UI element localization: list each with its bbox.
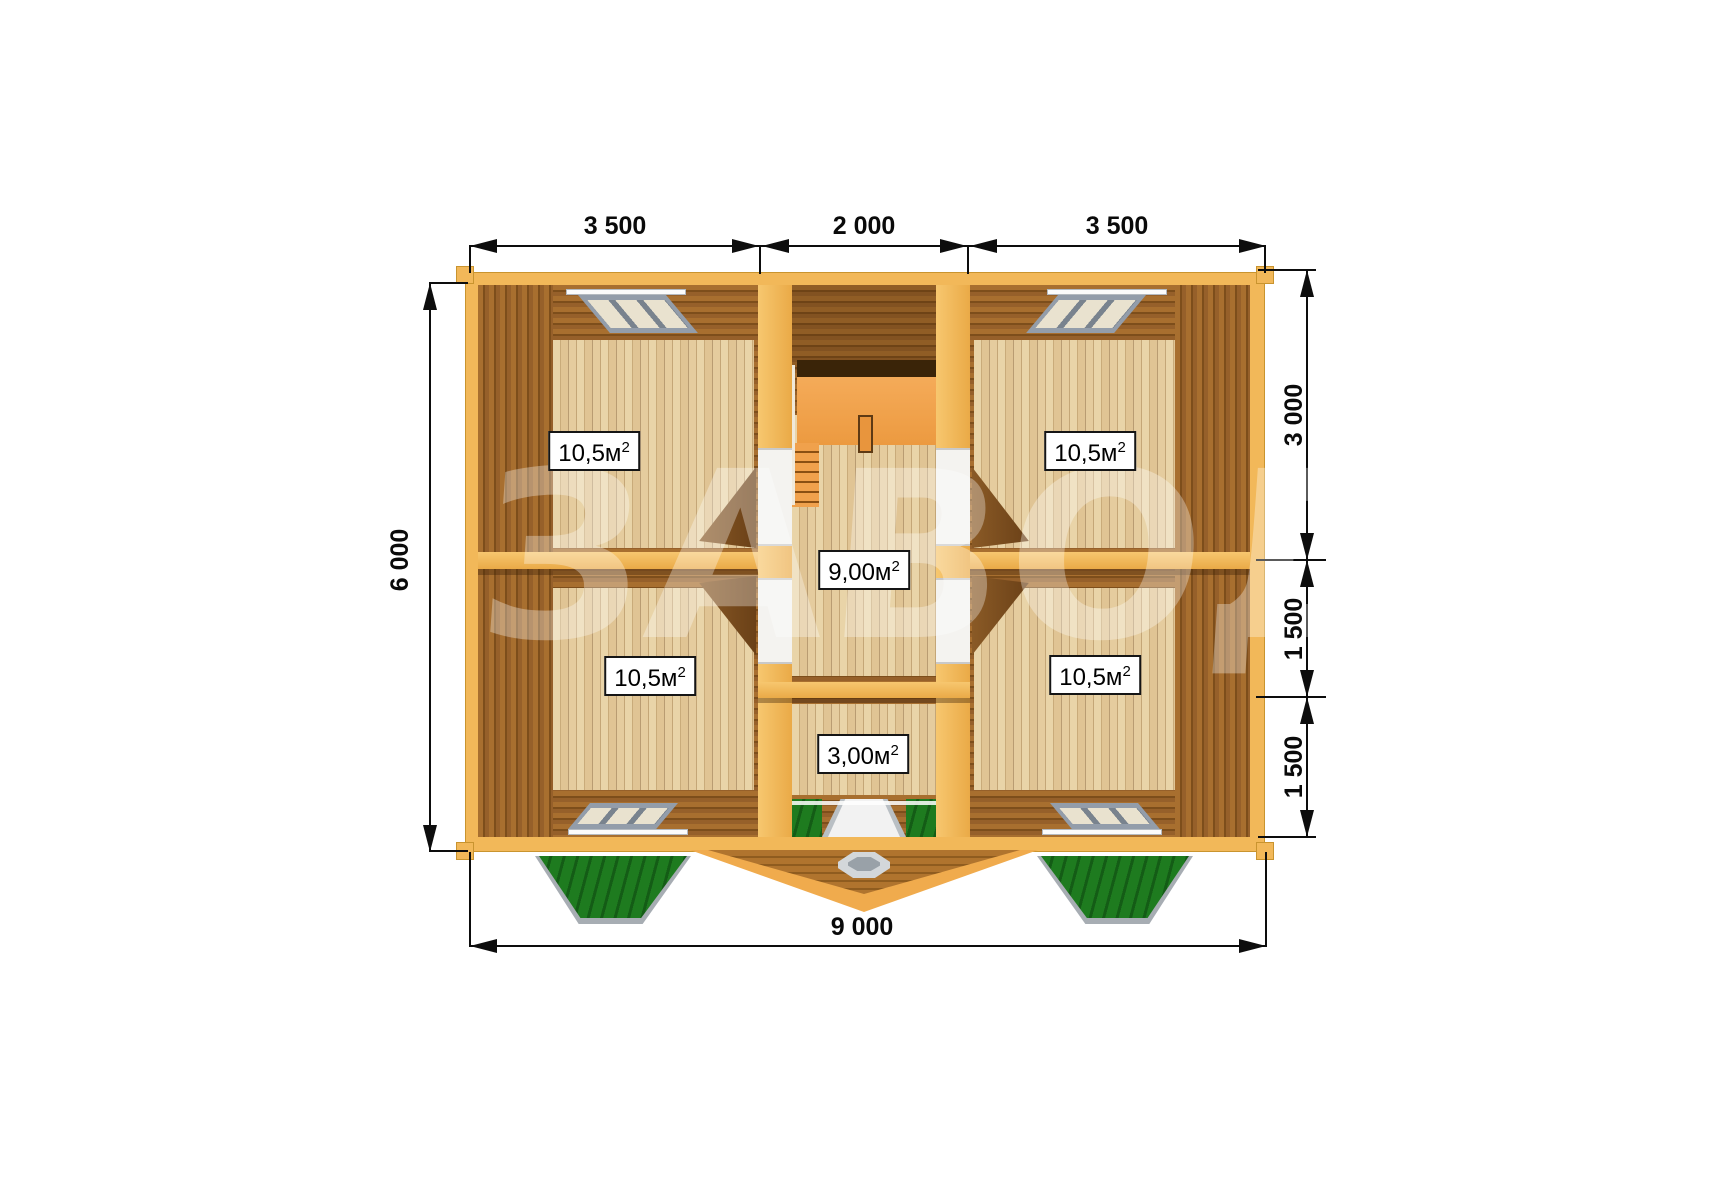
dim-arrow: [762, 239, 789, 253]
wall-shadow: [478, 569, 758, 575]
entry-room-wall: [758, 682, 970, 698]
dim-arrow: [423, 283, 437, 310]
dim-arrow: [470, 939, 497, 953]
door-opening-top-right: [936, 448, 970, 546]
dim-label-right-top: 3 000: [1279, 360, 1309, 470]
stair-newel-post: [858, 415, 873, 453]
middle-wall-left: [478, 552, 758, 569]
room-label-entry: 3,00м2: [817, 734, 909, 774]
dimension-line-top: [470, 245, 1266, 247]
porch-roof-right-green: [1041, 856, 1189, 918]
hallway-ceiling-shade: [792, 285, 936, 370]
dim-label-right-bottom: 1 500: [1279, 712, 1309, 822]
door-opening-bottom-right: [936, 578, 970, 664]
dim-arrow: [940, 239, 967, 253]
room-label-bottom-left: 10,5м2: [604, 656, 696, 696]
door-opening-top-left: [758, 448, 792, 546]
dim-label-top-left: 3 500: [555, 212, 675, 241]
dim-arrow: [423, 825, 437, 852]
porch-roof-right: [1037, 856, 1193, 924]
dimension-line-bottom: [470, 945, 1266, 947]
room-label-top-left: 10,5м2: [548, 431, 640, 471]
dim-label-right-middle: 1 500: [1279, 574, 1309, 684]
dim-label-top-middle: 2 000: [804, 212, 924, 241]
door-opening-bottom-left: [758, 578, 792, 664]
dim-arrow: [1300, 533, 1314, 560]
stair-stringer: [792, 365, 795, 505]
floor-plan-canvas: 10,5м2 10,5м2 9,00м2 10,5м2 10,5м2 3,00м…: [0, 0, 1728, 1203]
hallway-wall-right: [936, 285, 970, 837]
dim-tick: [1256, 559, 1326, 561]
skylight-window-bottom-left: [566, 801, 701, 841]
dim-label-top-right: 3 500: [1057, 212, 1177, 241]
wall-shadow: [970, 569, 1250, 575]
dim-arrow: [1239, 239, 1266, 253]
dim-extension: [469, 852, 471, 947]
skylight-window-top-left: [566, 289, 701, 339]
room-label-top-right: 10,5м2: [1044, 431, 1136, 471]
dim-tick: [759, 246, 761, 274]
dim-label-bottom: 9 000: [802, 913, 922, 942]
porch-roof-left-green: [539, 856, 687, 918]
dim-tick: [1256, 696, 1326, 698]
wall-shadow: [758, 698, 970, 703]
dim-arrow: [470, 239, 497, 253]
dim-extension: [1265, 852, 1267, 947]
dim-arrow: [970, 239, 997, 253]
stairwell-edge: [797, 360, 937, 377]
porch-roof-left: [535, 856, 691, 924]
dim-label-left: 6 000: [385, 505, 415, 615]
room-label-hallway: 9,00м2: [818, 550, 910, 590]
room-label-bottom-right: 10,5м2: [1049, 655, 1141, 695]
skylight-window-top-right: [1047, 289, 1182, 339]
dim-tick: [967, 246, 969, 274]
hallway-wall-left: [758, 285, 792, 837]
middle-wall-right: [970, 552, 1250, 569]
dim-arrow: [1300, 270, 1314, 297]
skylight-window-bottom-right: [1042, 801, 1177, 841]
dim-arrow: [1239, 939, 1266, 953]
dimension-line-left: [429, 283, 431, 852]
entrance-railing: [792, 801, 936, 805]
dim-arrow: [732, 239, 759, 253]
